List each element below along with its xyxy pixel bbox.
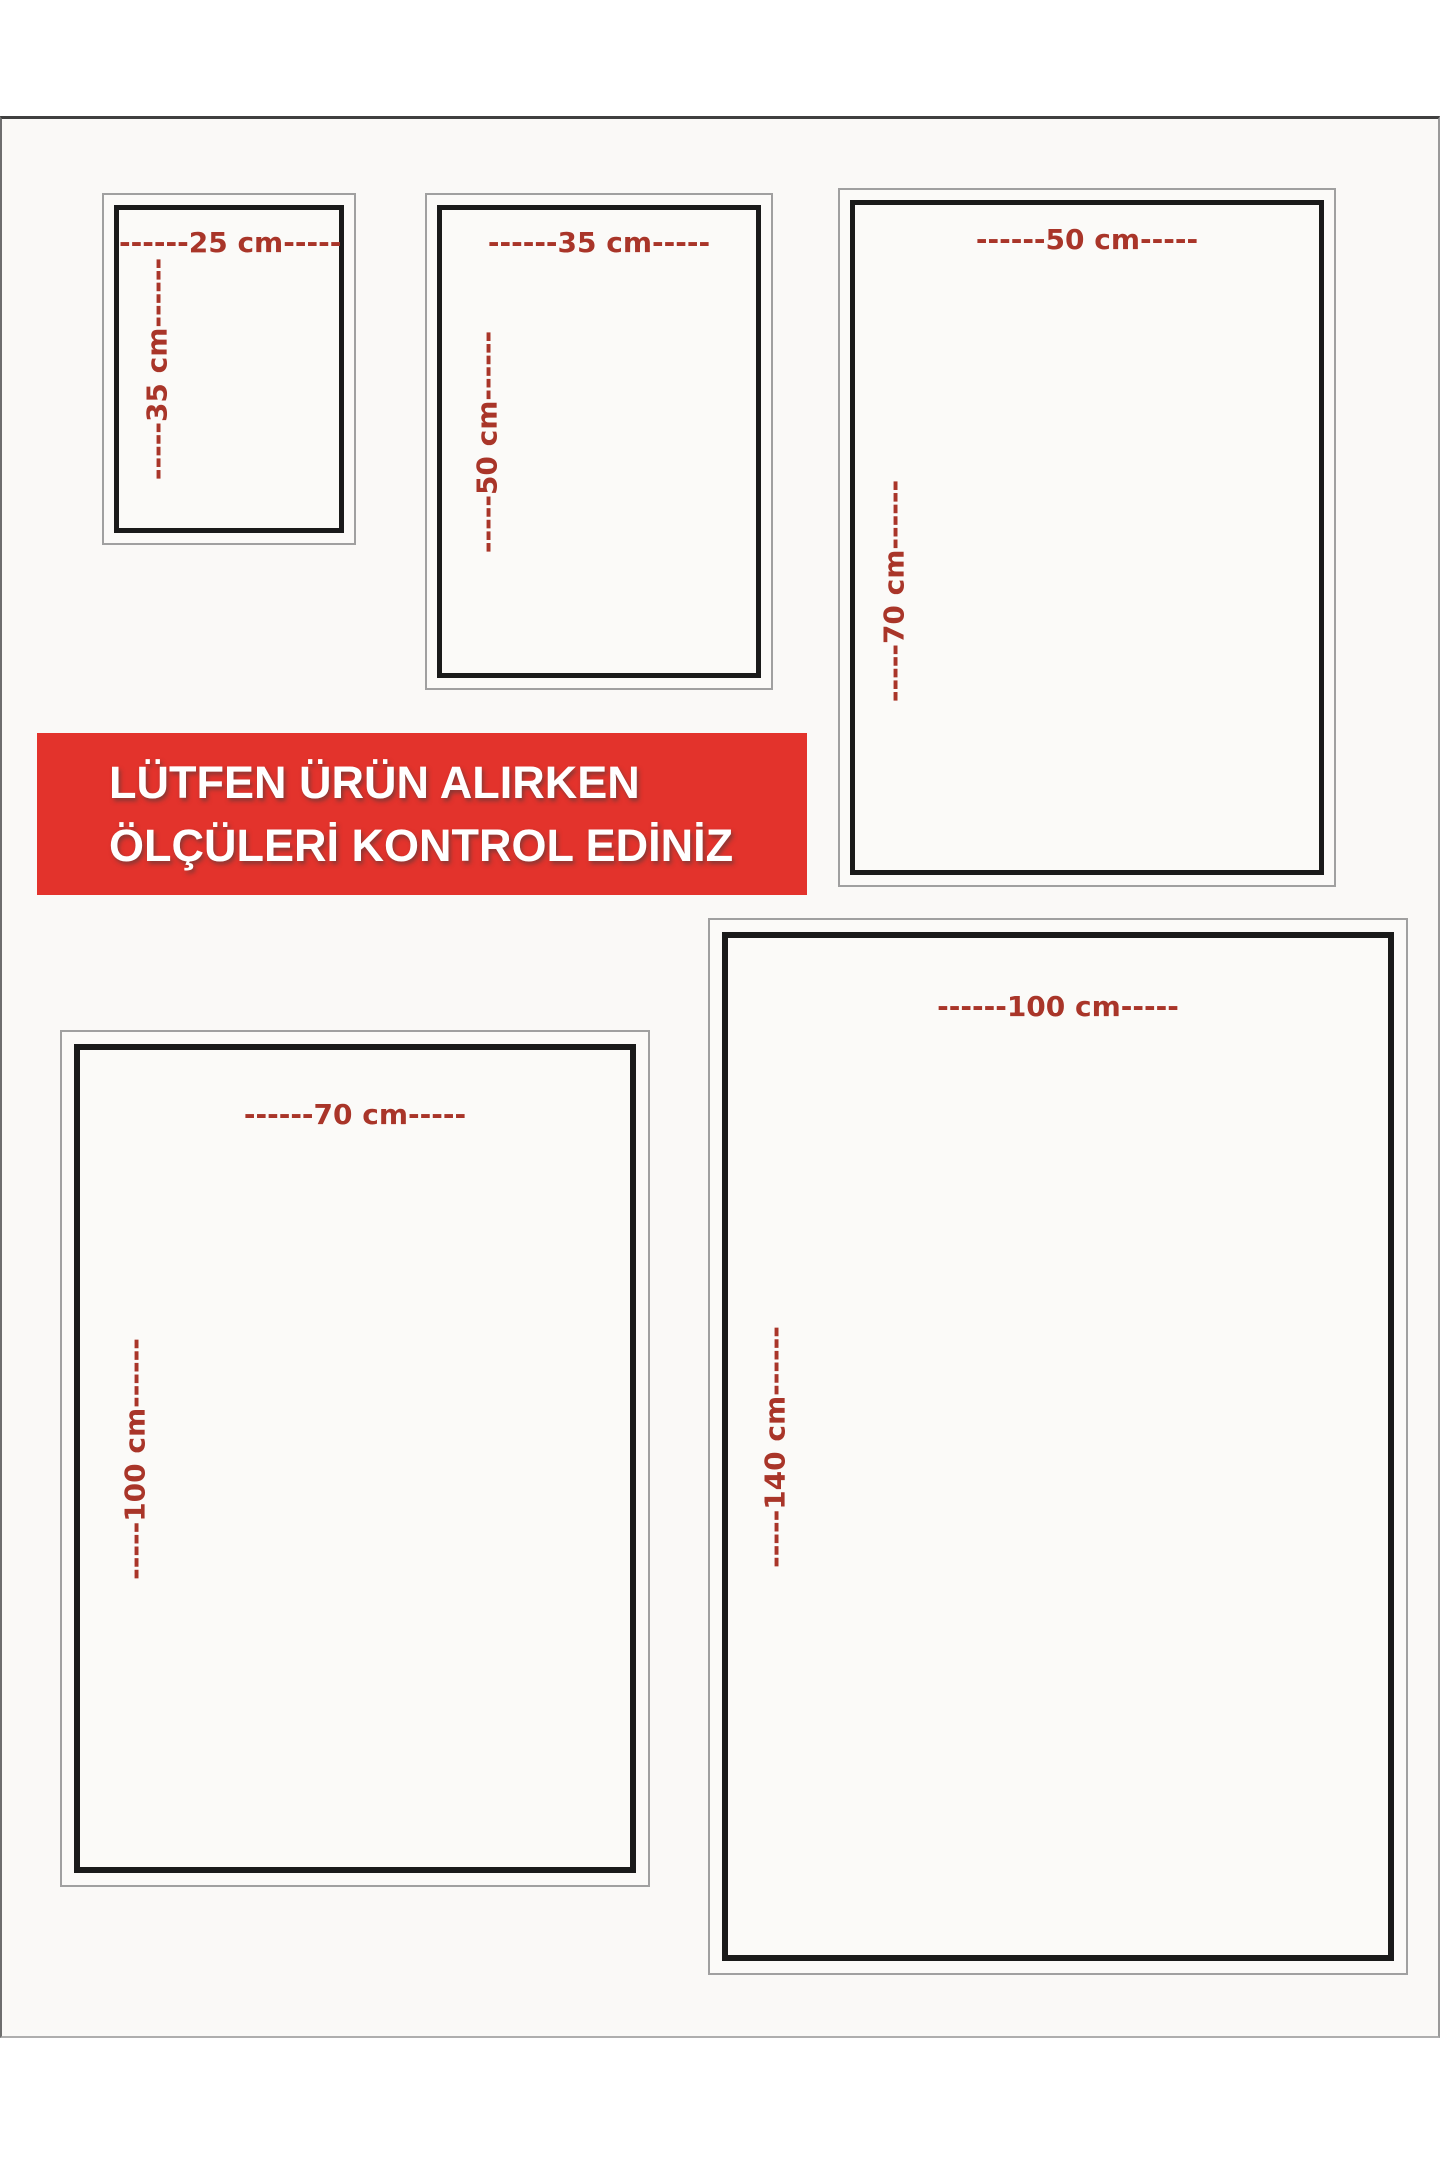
size-panel-50x70: ------50 cm----- -----70 cm------ <box>850 200 1324 875</box>
size-frame-35x50: ------35 cm----- -----50 cm------ <box>425 193 773 690</box>
width-dimension-label: ------35 cm----- <box>442 226 756 259</box>
size-panel-70x100: ------70 cm----- -----100 cm------ <box>74 1044 636 1873</box>
width-dimension-label: ------100 cm----- <box>728 990 1388 1023</box>
width-dimension-label: ------50 cm----- <box>855 223 1319 256</box>
height-dimension-label: -----70 cm------ <box>878 480 911 702</box>
size-guide-page: ------25 cm----- -----35 cm------ ------… <box>0 0 1440 2160</box>
size-frame-100x140: ------100 cm----- -----140 cm------ <box>708 918 1408 1975</box>
banner-line-2: ÖLÇÜLERİ KONTROL EDİNİZ <box>109 814 787 877</box>
size-frame-50x70: ------50 cm----- -----70 cm------ <box>838 188 1336 887</box>
size-panel-25x35: ------25 cm----- -----35 cm------ <box>114 205 344 533</box>
size-panel-100x140: ------100 cm----- -----140 cm------ <box>722 932 1394 1961</box>
size-frame-25x35: ------25 cm----- -----35 cm------ <box>102 193 356 545</box>
size-panel-35x50: ------35 cm----- -----50 cm------ <box>437 205 761 678</box>
width-dimension-label: ------70 cm----- <box>80 1098 630 1131</box>
height-dimension-label: -----100 cm------ <box>119 1338 152 1580</box>
height-dimension-label: -----140 cm------ <box>759 1326 792 1568</box>
size-frame-70x100: ------70 cm----- -----100 cm------ <box>60 1030 650 1887</box>
height-dimension-label: -----35 cm------ <box>141 258 174 480</box>
size-warning-banner: LÜTFEN ÜRÜN ALIRKEN ÖLÇÜLERİ KONTROL EDİ… <box>37 733 807 895</box>
banner-line-1: LÜTFEN ÜRÜN ALIRKEN <box>109 751 787 814</box>
height-dimension-label: -----50 cm------ <box>471 330 504 552</box>
width-dimension-label: ------25 cm----- <box>119 226 339 259</box>
